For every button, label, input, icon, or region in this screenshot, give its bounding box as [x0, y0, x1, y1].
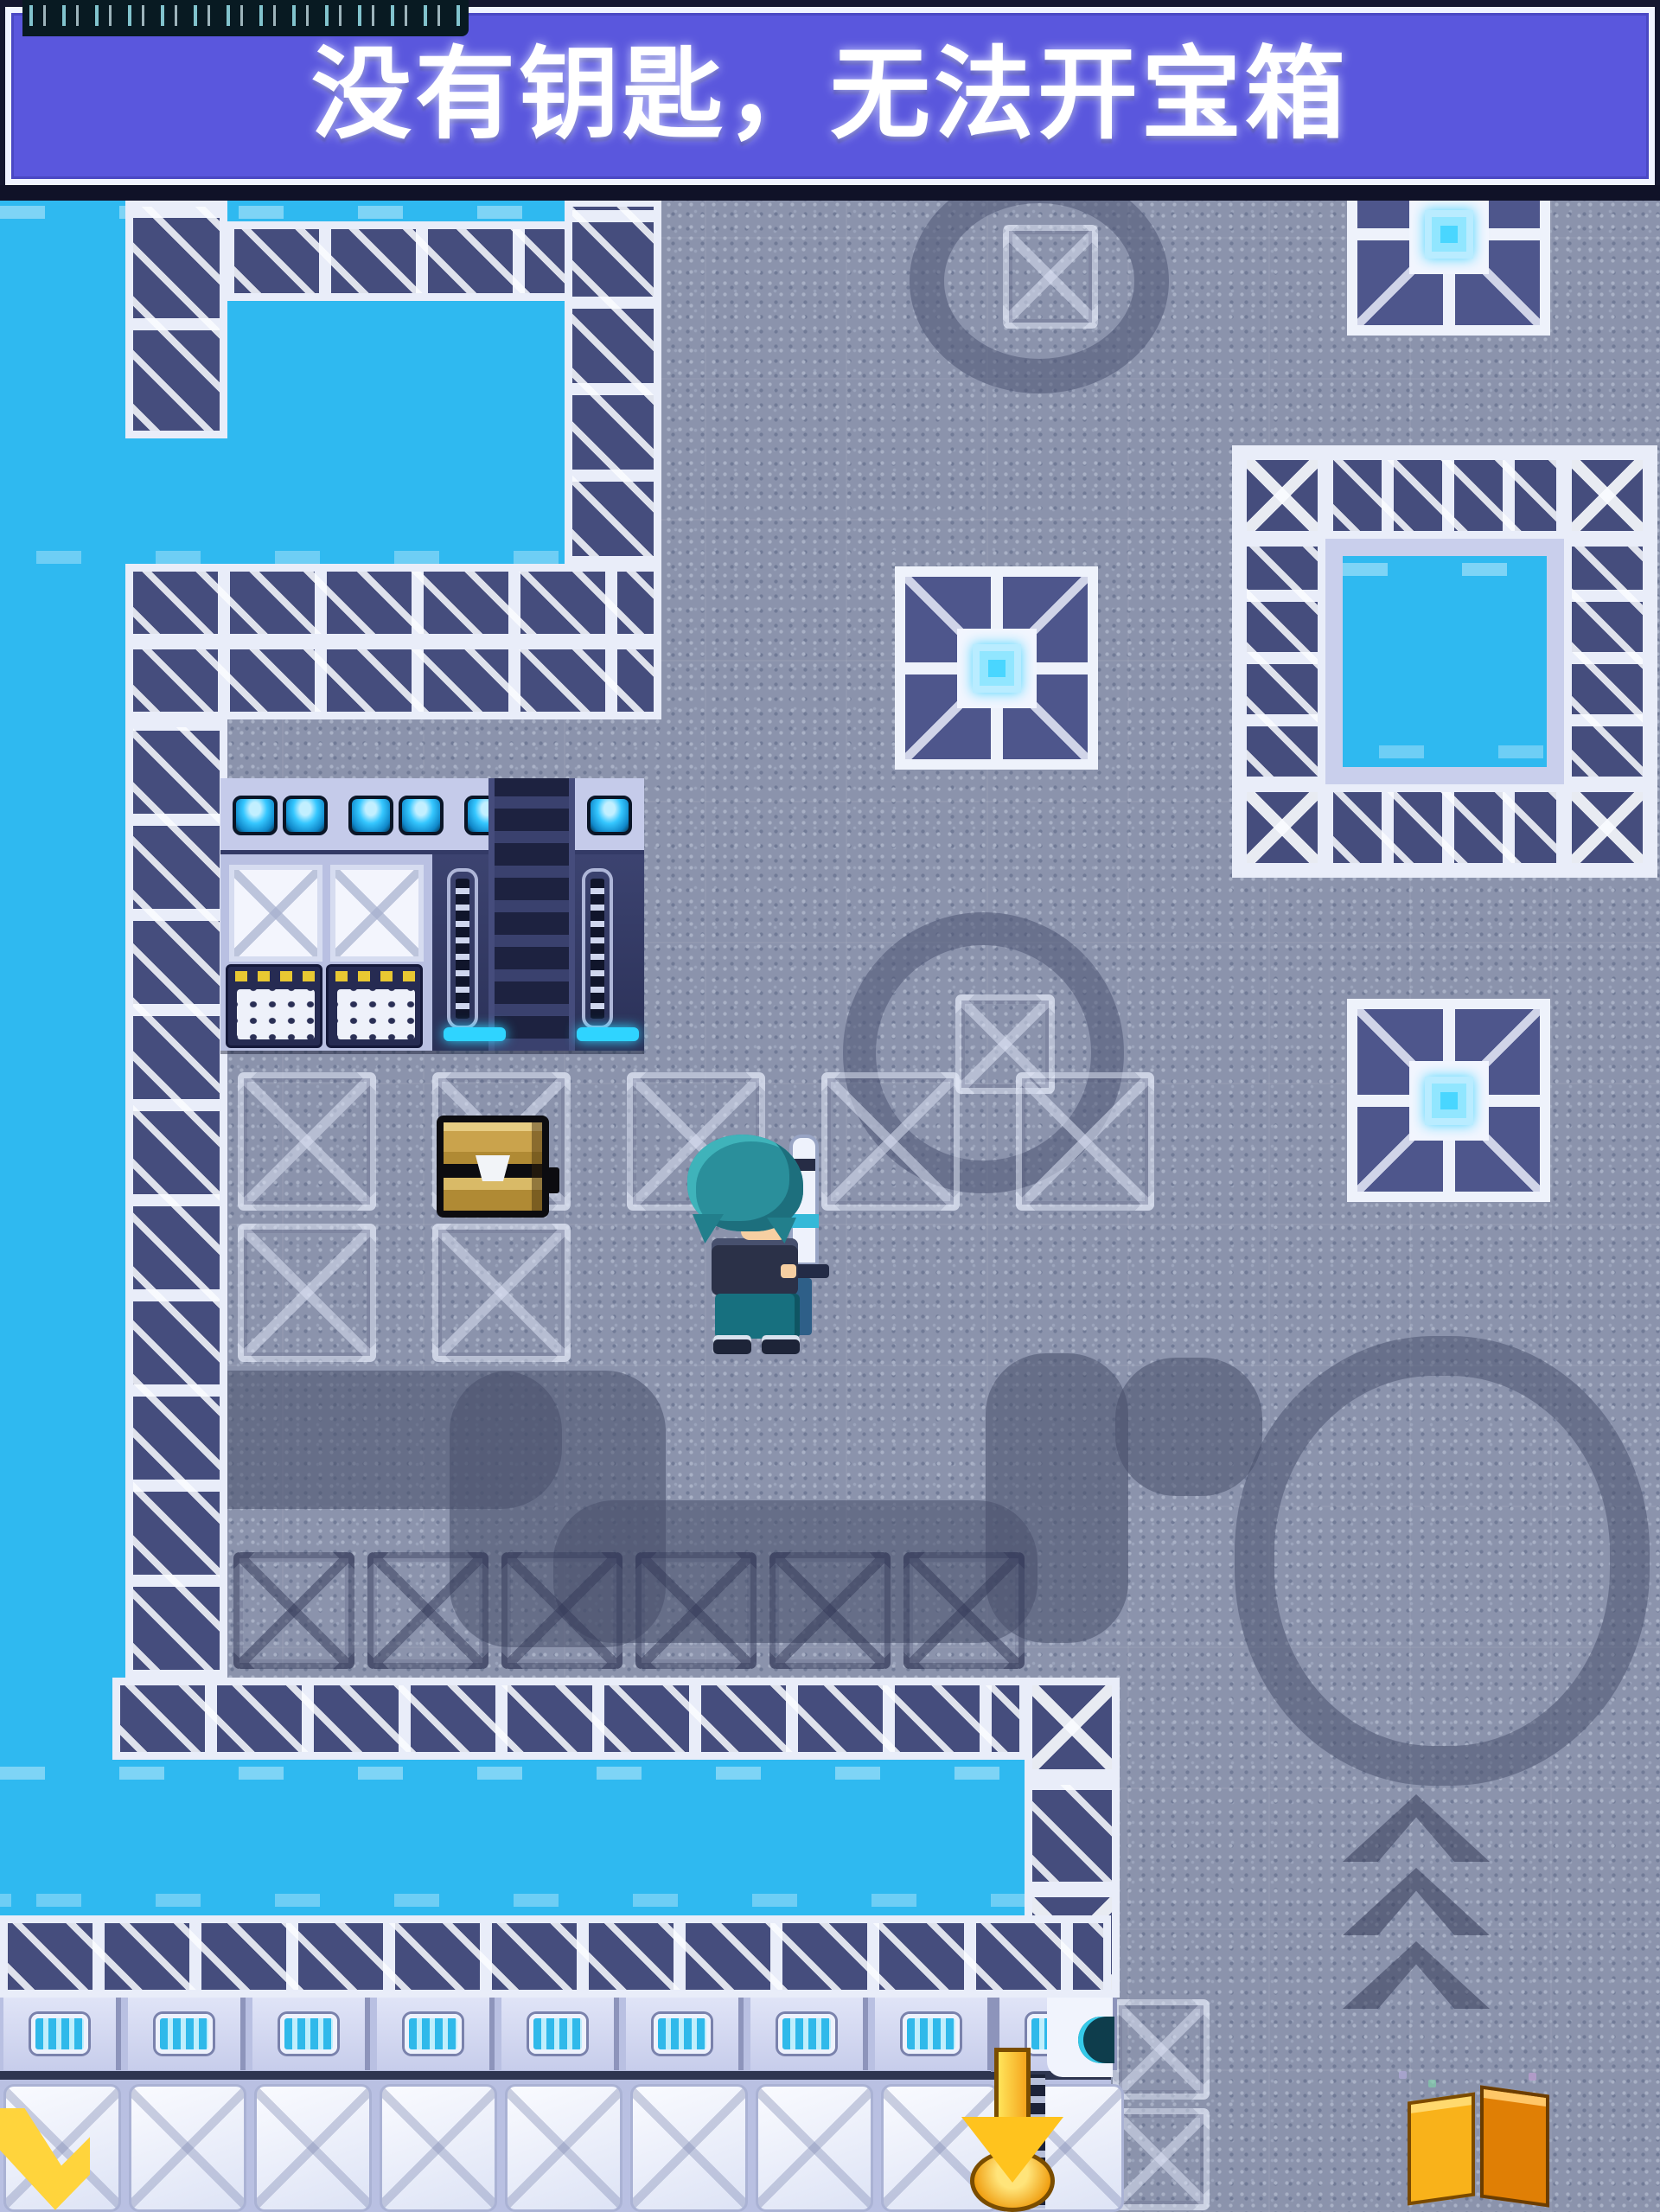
keypad-console: [326, 964, 423, 1048]
floor-ring-stain: [1235, 1336, 1650, 1786]
white-crate-tile: [630, 2084, 748, 2212]
sparkle: [1428, 2080, 1436, 2087]
vent-grille-icon: [529, 2014, 586, 2054]
yellow-buttons: [235, 971, 315, 981]
wall-corner-tile: [1564, 784, 1650, 871]
gem-emblem-right: [1347, 999, 1550, 1202]
led-strip: [447, 868, 478, 1029]
gem-button: [587, 796, 632, 835]
gem-button: [233, 796, 278, 835]
player-arm: [781, 1264, 796, 1278]
chevron-up-icon: [1343, 1941, 1490, 2009]
white-crate-tile: [505, 2084, 622, 2212]
chevron-up-icon: [1343, 1868, 1490, 1935]
white-crate-tile: [330, 865, 424, 962]
wall-corner-tile: [1239, 784, 1325, 871]
white-crate-tile: [254, 2084, 372, 2212]
wall-tiles: [565, 199, 661, 564]
wall-corner-tile: [1564, 452, 1650, 539]
gem-icon: [973, 644, 1021, 693]
wall-tiles: [1325, 452, 1564, 539]
wall-tiles: [125, 642, 661, 719]
floor-crate: [367, 1552, 488, 1669]
wall-tiles: [1325, 784, 1564, 871]
machine-column: [488, 778, 575, 1051]
control-console[interactable]: [220, 778, 644, 1051]
port-icon: [1078, 2017, 1114, 2063]
sparkle: [1529, 2073, 1536, 2081]
white-crate-tile: [229, 865, 322, 962]
box-left-flap: [1408, 2093, 1475, 2206]
goal-arrow-marker: [951, 2048, 1074, 2212]
white-crate-tile: [129, 2084, 246, 2212]
floor-crate-row: [238, 1224, 571, 1362]
glow-bar: [444, 1027, 506, 1041]
message-text: 没有钥匙，无法开宝箱: [11, 13, 1649, 176]
pool-bottom-left: [0, 1760, 1025, 1915]
white-crate-tile: [756, 2084, 873, 2212]
wall-tiles: [125, 199, 227, 438]
chest-handle: [547, 1167, 559, 1193]
wall-tiles: [1239, 539, 1325, 784]
floor-path-segment: [1115, 1358, 1262, 1496]
chest-buckle: [476, 1155, 510, 1181]
vent-grille-icon: [778, 2014, 835, 2054]
floor-chevrons: [1343, 1794, 1490, 2009]
wall-tiles: [112, 1678, 1027, 1760]
wall-tiles: [1025, 1777, 1120, 1889]
wall-corner-tile: [1025, 1678, 1120, 1777]
vent-grille-icon: [654, 2014, 711, 2054]
floor-crate-row-dark: [233, 1552, 1025, 1669]
gem-button: [283, 796, 328, 835]
vent-tile: [750, 1998, 868, 2070]
keypad-grid: [237, 989, 315, 1039]
wall-tiles: [0, 1915, 1111, 1998]
floor-crate: [233, 1552, 354, 1669]
yellow-buttons: [335, 971, 415, 981]
vent-grille-icon: [156, 2014, 213, 2054]
gem-icon: [1425, 210, 1473, 259]
floor-crate: [1003, 225, 1098, 329]
status-bar: [22, 0, 469, 36]
gem-emblem-center: [895, 566, 1098, 770]
glow-bar: [577, 1027, 639, 1041]
keypad-console: [226, 964, 322, 1048]
vent-tile: [377, 1998, 495, 2070]
player-boot: [713, 1335, 751, 1354]
wall-tiles: [1564, 539, 1650, 784]
vent-tile: [252, 1998, 370, 2070]
gem-icon: [1425, 1077, 1473, 1125]
white-crate-tile: [380, 2084, 497, 2212]
game-screen: 没有钥匙，无法开宝箱: [0, 0, 1660, 2212]
keypad-grid: [337, 989, 415, 1039]
floor-crate: [903, 1552, 1025, 1669]
floor-crate: [238, 1072, 376, 1211]
pool-right-water: [1343, 556, 1547, 767]
floor-crate: [1113, 1999, 1210, 2100]
sparkle: [1399, 2071, 1407, 2079]
player-legs: [715, 1294, 800, 1339]
gem-button: [348, 796, 393, 835]
floor-crate: [635, 1552, 757, 1669]
pool-right-frame: [1232, 445, 1657, 878]
box-right-flap: [1480, 2085, 1549, 2207]
orange-open-box[interactable]: [1399, 2071, 1559, 2212]
gem-button: [399, 796, 444, 835]
floor-crate: [1016, 1072, 1154, 1211]
treasure-chest[interactable]: [437, 1116, 549, 1218]
player-boot: [762, 1335, 800, 1354]
map-canvas[interactable]: [0, 199, 1660, 2212]
floor-crate: [432, 1224, 571, 1362]
bottom-wall-panel: [0, 1998, 1111, 2212]
chevron-up-icon: [1343, 1794, 1490, 1862]
floor-crate: [821, 1072, 960, 1211]
vent-tile: [626, 1998, 744, 2070]
vent-tile: [501, 1998, 619, 2070]
vent-grille-icon: [405, 2014, 462, 2054]
marker-shaft: [994, 2048, 1031, 2124]
banner-shadow: [0, 185, 1660, 201]
vent-row: [3, 1998, 1117, 2070]
vent-grille-icon: [31, 2014, 88, 2054]
floor-crate: [238, 1224, 376, 1362]
floor-crate: [501, 1552, 622, 1669]
player-character: [687, 1135, 833, 1355]
vent-tile: [3, 1998, 121, 2070]
panel-separator: [0, 2071, 1111, 2080]
wall-tiles: [125, 564, 661, 642]
vent-grille-icon: [280, 2014, 337, 2054]
floor-crate: [1113, 2108, 1210, 2210]
wall-tiles: [125, 719, 227, 1678]
wall-corner-tile: [1239, 452, 1325, 539]
floor-crate: [769, 1552, 891, 1669]
vent-tile: [128, 1998, 246, 2070]
led-strip: [582, 868, 613, 1029]
